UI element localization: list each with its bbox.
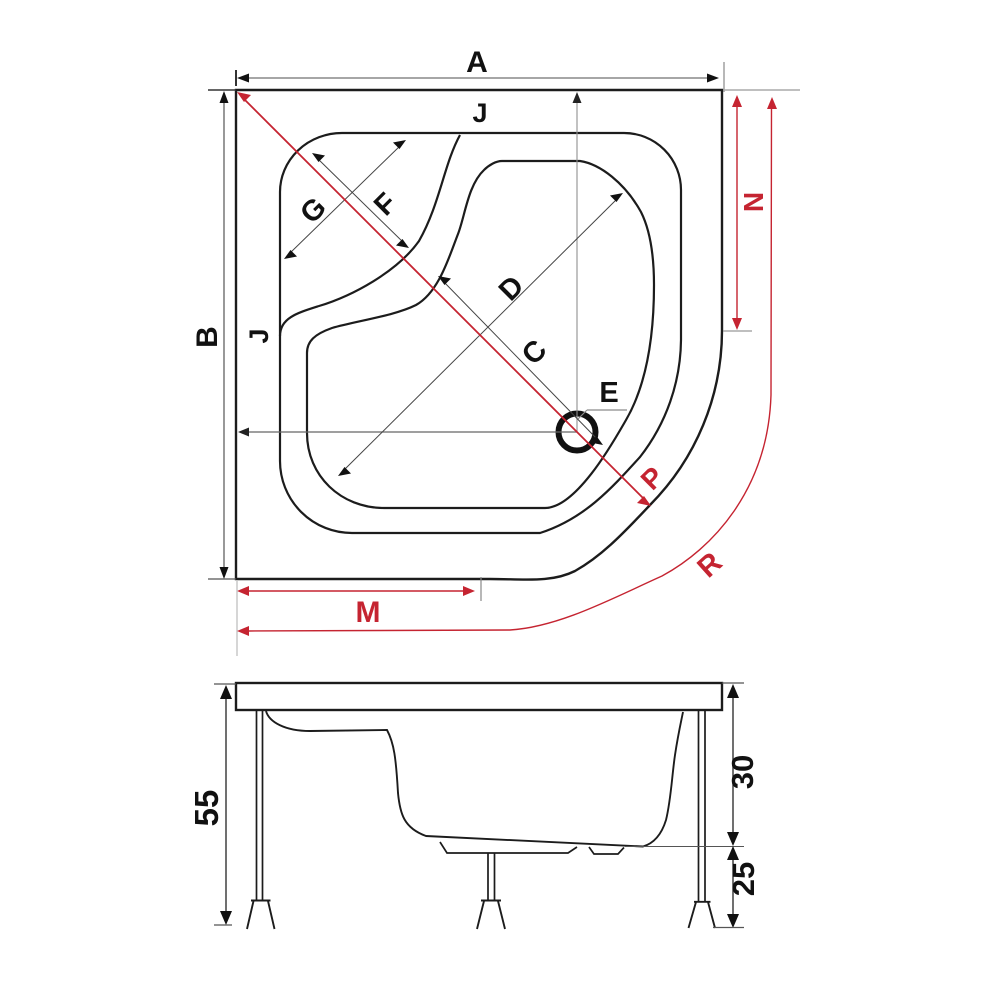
svg-text:A: A bbox=[466, 46, 488, 79]
svg-text:M: M bbox=[356, 596, 381, 629]
svg-text:N: N bbox=[738, 192, 769, 212]
svg-text:E: E bbox=[599, 377, 618, 409]
svg-text:J: J bbox=[472, 98, 487, 128]
svg-text:55: 55 bbox=[188, 790, 225, 827]
svg-text:J: J bbox=[244, 328, 274, 343]
svg-text:25: 25 bbox=[726, 862, 761, 896]
svg-text:B: B bbox=[191, 326, 224, 348]
svg-text:30: 30 bbox=[725, 755, 760, 789]
